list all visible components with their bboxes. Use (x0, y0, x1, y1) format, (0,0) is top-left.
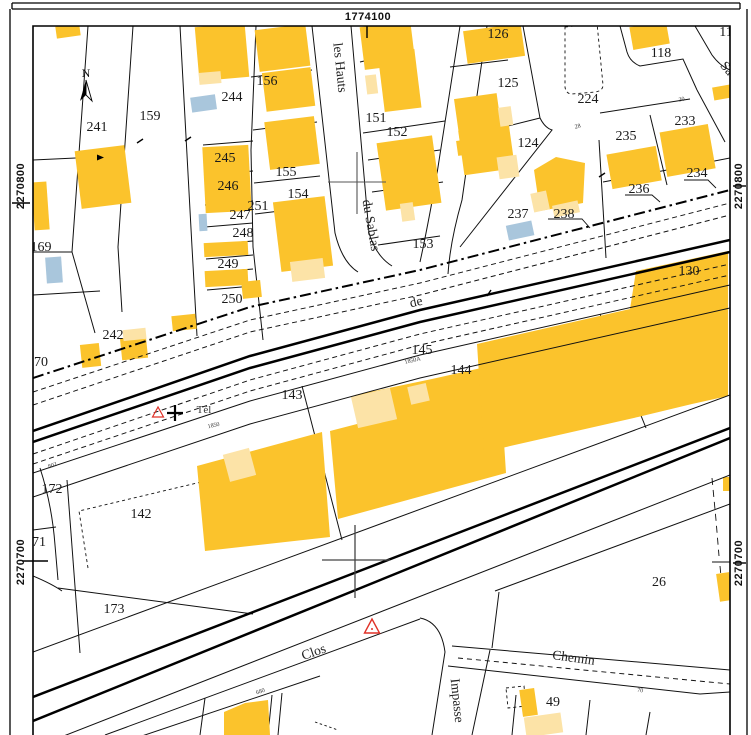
parcel-label-70: 70 (34, 355, 48, 370)
parcel-label-26: 26 (652, 575, 666, 590)
annotation-70: 70 (637, 688, 644, 695)
annotation-30: 30 (678, 96, 685, 103)
grid-x-label: 1774100 (345, 11, 391, 23)
parcel-label-49: 49 (546, 695, 560, 710)
north-arrow-icon: N (80, 66, 92, 101)
parcel-label-251: 251 (248, 199, 269, 214)
geodetic-triangle-icon (153, 407, 164, 417)
parcel-label-125: 125 (498, 76, 519, 91)
street-label-du-sablas: du Sablas (360, 198, 384, 252)
boundary-ticks (97, 137, 605, 296)
parcel-label-71: 71 (32, 535, 46, 550)
parcel-label-143: 143 (282, 388, 303, 403)
buildings (31, 21, 733, 735)
parcel-label-233: 233 (675, 114, 696, 129)
parcel-label-159: 159 (140, 109, 161, 124)
street-label-clos: Clos (299, 641, 327, 663)
parcel-label-151: 151 (366, 111, 387, 126)
buildings-hard (31, 21, 733, 735)
geodetic-triangle-icon (365, 619, 380, 633)
parcel-label-245: 245 (215, 151, 236, 166)
parcel-label-234: 234 (687, 166, 708, 181)
parcel-label-236: 236 (629, 182, 650, 197)
parcel-label-246: 246 (218, 179, 239, 194)
grid-y-label-right-top: 2270800 (733, 163, 745, 209)
grid-y-label-left-bottom: 2270700 (15, 539, 27, 585)
parcel-label-249: 249 (218, 257, 239, 272)
parcel-label-173: 173 (104, 602, 125, 617)
grid-y-label-left-top: 2270800 (15, 163, 27, 209)
annotation-tél: Tél (197, 404, 212, 416)
parcel-label-241: 241 (87, 120, 108, 135)
parcel-label-250: 250 (222, 292, 243, 307)
cadastral-map-page: N 24115916915624424524624724824925125024… (0, 0, 751, 735)
parcel-label-124: 124 (518, 136, 539, 151)
parcel-label-224: 224 (578, 92, 599, 107)
parcel-label-130: 130 (679, 264, 700, 279)
parcel-label-145: 145 (412, 343, 433, 358)
street-label-les-hauts: les Hauts (330, 42, 350, 93)
map-content: N 24115916915624424524624724824925125024… (31, 21, 738, 735)
parcel-label-242: 242 (103, 328, 124, 343)
annotation-802: 802 (47, 462, 57, 470)
top-border-lines (12, 3, 740, 9)
grid-cross-lower (322, 525, 390, 598)
parcel-label-153: 153 (413, 237, 434, 252)
annotation-1850a: 1850A (404, 356, 422, 366)
parcel-label-237: 237 (508, 207, 529, 222)
survey-cross-icon (167, 405, 183, 421)
annotation-1850: 1850 (207, 422, 220, 431)
parcel-label-248: 248 (233, 226, 254, 241)
annotation-28: 28 (574, 123, 581, 130)
street-label-chemin: Chemin (551, 647, 596, 668)
grid-y-label-right-bottom: 2270700 (733, 540, 745, 586)
parcel-label-142: 142 (131, 507, 152, 522)
parcel-label-126: 126 (488, 27, 509, 42)
street-label-impasse: Impasse (448, 678, 468, 724)
north-letter: N (82, 66, 91, 80)
grid-cross-upper (328, 152, 386, 214)
parcel-label-154: 154 (288, 187, 309, 202)
cadastral-map[interactable]: N 24115916915624424524624724824925125024… (0, 0, 751, 735)
geodetic-dot (371, 628, 373, 630)
parcel-label-238: 238 (554, 207, 575, 222)
parcel-label-172: 172 (42, 482, 63, 497)
parcel-label-118: 118 (651, 46, 671, 61)
parcel-label-144: 144 (451, 363, 472, 378)
parcel-label-152: 152 (387, 125, 408, 140)
parcel-label-244: 244 (222, 90, 243, 105)
parcel-label-235: 235 (616, 129, 637, 144)
street-label-sa: Sa (717, 58, 737, 78)
parcel-label-155: 155 (276, 165, 297, 180)
street-label-de: de (408, 293, 424, 310)
parcel-label-156: 156 (257, 74, 278, 89)
